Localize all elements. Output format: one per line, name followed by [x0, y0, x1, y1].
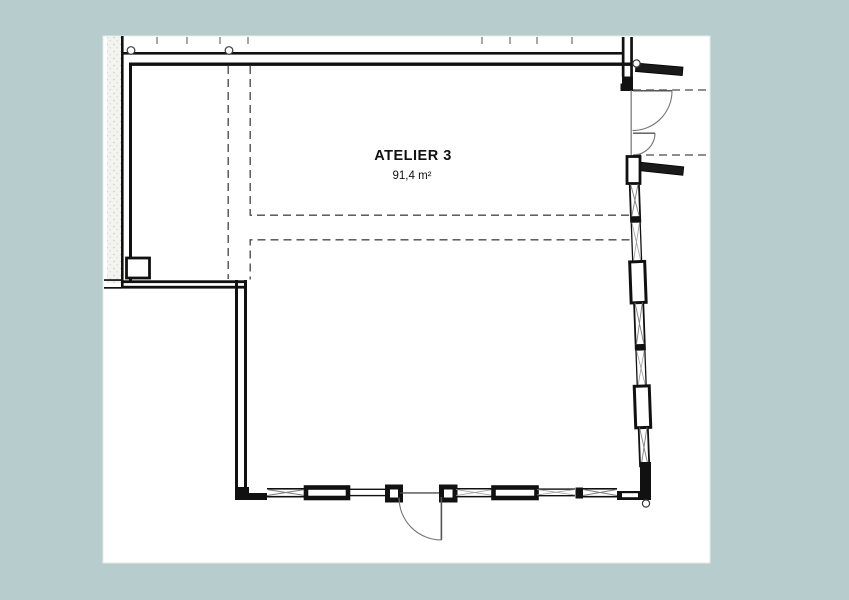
- wall-tick: [635, 344, 646, 351]
- survey-marker: [642, 500, 649, 507]
- door-leaf: [633, 133, 655, 134]
- insulation-strip: [107, 36, 121, 283]
- column-square: [627, 157, 640, 184]
- wall-corner: [235, 493, 267, 500]
- wall-corner-notch: [622, 493, 638, 497]
- plan-sheet: [103, 36, 710, 563]
- floor-plan-canvas: ATELIER 3 91,4 m²: [0, 0, 849, 600]
- window-pier: [494, 488, 537, 499]
- room-name-label: ATELIER 3: [374, 148, 452, 164]
- survey-marker: [225, 47, 233, 55]
- wall-tick: [576, 488, 584, 499]
- wall-tick: [630, 216, 641, 223]
- survey-marker: [633, 60, 640, 67]
- door-jamb: [442, 487, 456, 500]
- survey-marker: [127, 47, 135, 55]
- room-area-label: 91,4 m²: [393, 170, 432, 182]
- door-leaf: [441, 497, 443, 540]
- facade-window: [634, 386, 651, 428]
- window-pier: [306, 488, 348, 499]
- column-square: [127, 258, 150, 278]
- door-threshold: [400, 492, 442, 493]
- plan-viewer: ATELIER 3 91,4 m²: [0, 0, 849, 600]
- door-leaf: [633, 90, 672, 92]
- facade-window: [630, 261, 646, 303]
